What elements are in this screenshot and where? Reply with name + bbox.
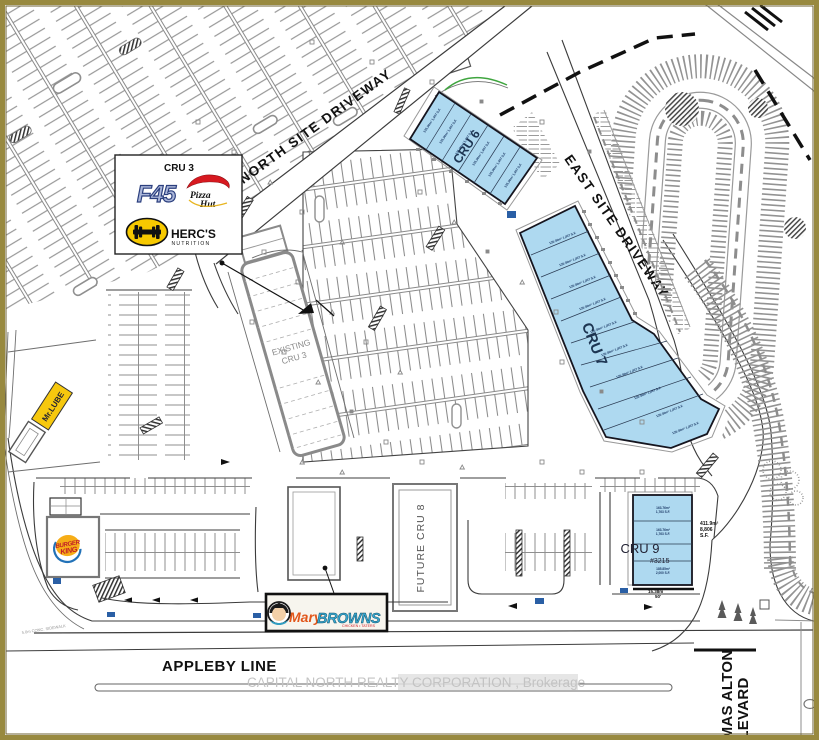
svg-text:BOULEVARD: BOULEVARD <box>735 677 752 740</box>
svg-text:50': 50' <box>655 594 661 599</box>
svg-text:CHICKEN • TATERS: CHICKEN • TATERS <box>342 624 376 628</box>
svg-text:#3215: #3215 <box>650 558 670 565</box>
svg-text:F45: F45 <box>137 181 177 208</box>
svg-text:CRU 3: CRU 3 <box>164 163 194 174</box>
svg-text:APPLEBY LINE: APPLEBY LINE <box>162 658 277 675</box>
svg-text:HERC'S: HERC'S <box>171 227 216 241</box>
svg-text:2,000 S.F.: 2,000 S.F. <box>656 571 670 575</box>
svg-text:1,763 S.F.: 1,763 S.F. <box>656 510 670 514</box>
svg-text:THOMAS ALTON: THOMAS ALTON <box>719 650 736 740</box>
svg-text:FUTURE CRU 8: FUTURE CRU 8 <box>415 503 427 592</box>
svg-text:NUTRITION: NUTRITION <box>172 241 211 247</box>
svg-text:S.F.: S.F. <box>700 533 709 539</box>
svg-text:1,763 S.F.: 1,763 S.F. <box>656 532 670 536</box>
svg-text:CAPITAL NORTH REALTY CORPORATI: CAPITAL NORTH REALTY CORPORATION , Broke… <box>247 675 585 690</box>
svg-text:Hut: Hut <box>199 200 216 210</box>
svg-text:CRU 9: CRU 9 <box>620 541 659 556</box>
